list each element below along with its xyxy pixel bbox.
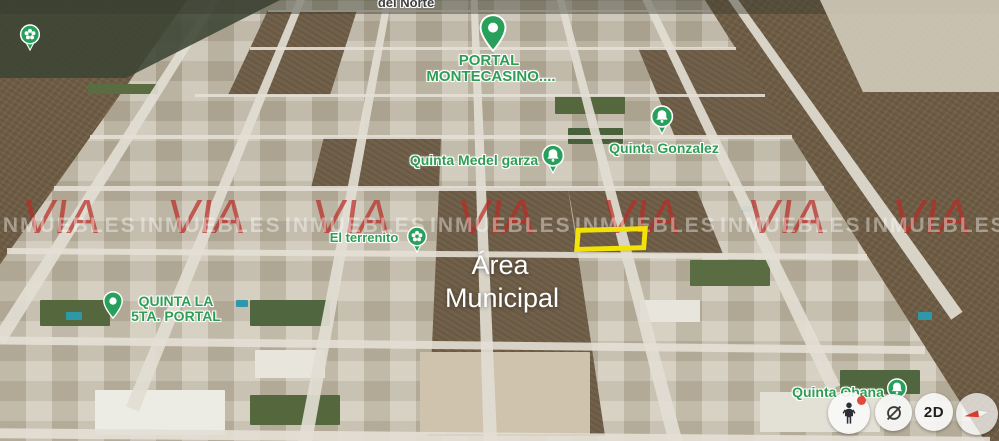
label-quinta-la-5ta-line2[interactable]: 5TA. PORTAL [131, 308, 221, 324]
street [195, 94, 765, 97]
street [54, 186, 824, 191]
pin-portal-montecasino[interactable] [478, 14, 508, 52]
pegman-icon [838, 401, 860, 425]
lawn-patch [250, 300, 330, 326]
pin-quinta-medel-garza[interactable] [541, 144, 565, 174]
satellite-map[interactable]: VIA INMUEBLES VIA INMUEBLES VIA INMUEBLE… [0, 0, 999, 441]
ring-pin-icon [102, 291, 124, 319]
slashed-circle-icon [883, 402, 905, 424]
pool [66, 312, 82, 320]
rotation-disabled-button[interactable] [875, 394, 912, 431]
street-view-notification-dot [857, 396, 866, 405]
pin-quinta-la-5ta[interactable] [102, 291, 124, 319]
toggle-2d-button[interactable]: 2D [915, 393, 953, 431]
lawn-patch [250, 395, 340, 425]
ring-pin-icon [478, 14, 508, 52]
lawn-patch [690, 260, 770, 286]
building [420, 352, 590, 434]
bell-pin-icon [650, 105, 674, 135]
label-quinta-gonzalez[interactable]: Quinta Gonzalez [609, 140, 719, 156]
flower-pin-icon [19, 24, 41, 51]
street [90, 135, 792, 139]
flower-pin-icon [406, 226, 428, 253]
area-municipal-label-line1: Área [471, 250, 528, 281]
compass-button[interactable] [956, 393, 998, 435]
label-quinta-la-5ta-line1[interactable]: QUINTA LA [139, 293, 214, 309]
label-quinta-medel-garza[interactable]: Quinta Medel garza [410, 152, 538, 168]
toggle-2d-label: 2D [924, 404, 944, 421]
pin-northwest-place[interactable] [19, 24, 41, 51]
label-portal-montecasino-line2[interactable]: MONTECASINO.... [426, 68, 555, 85]
lawn-patch [88, 84, 158, 94]
compass-icon [957, 394, 996, 433]
pool [918, 312, 932, 320]
highlighted-lot-outline [574, 226, 648, 252]
pool [236, 300, 248, 307]
pin-quinta-gonzalez[interactable] [650, 105, 674, 135]
bell-pin-icon [541, 144, 565, 174]
label-portal-montecasino-line1[interactable]: PORTAL [459, 52, 520, 69]
street-label: del Norte [378, 0, 434, 10]
label-el-terrenito[interactable]: El terrenito [330, 230, 399, 245]
area-municipal-label-line2: Municipal [445, 283, 559, 314]
pin-el-terrenito[interactable] [406, 226, 428, 253]
